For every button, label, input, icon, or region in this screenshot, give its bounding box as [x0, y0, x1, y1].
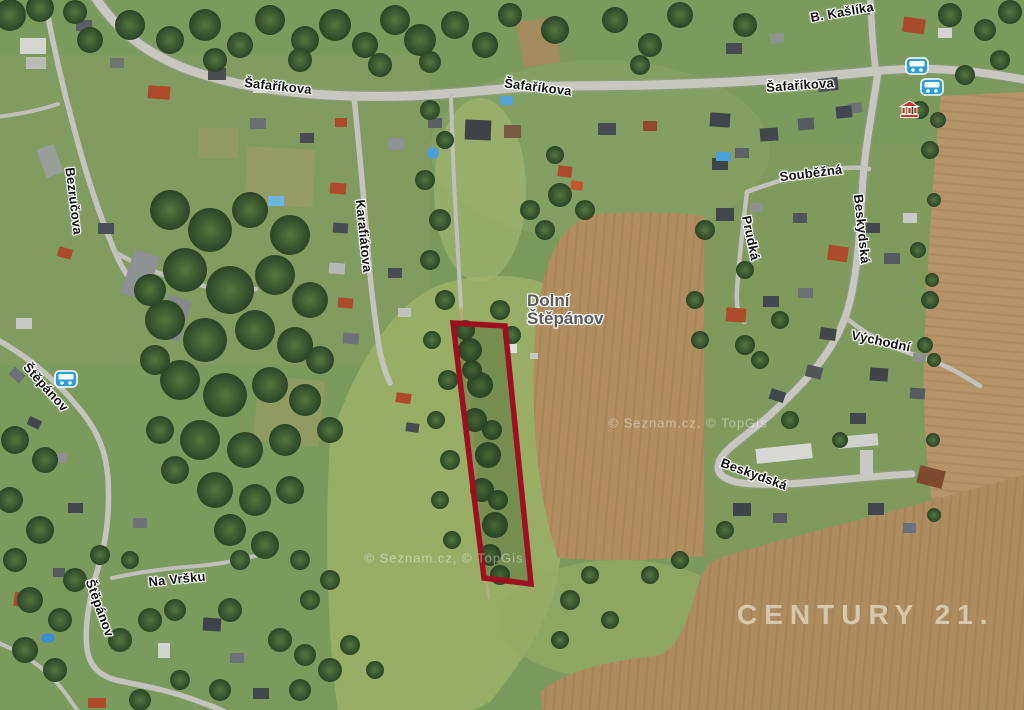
- aerial-imagery[interactable]: [0, 0, 1024, 710]
- map-viewport[interactable]: Šafaříkova Šafaříkova Šafaříkova B. Kašl…: [0, 0, 1024, 710]
